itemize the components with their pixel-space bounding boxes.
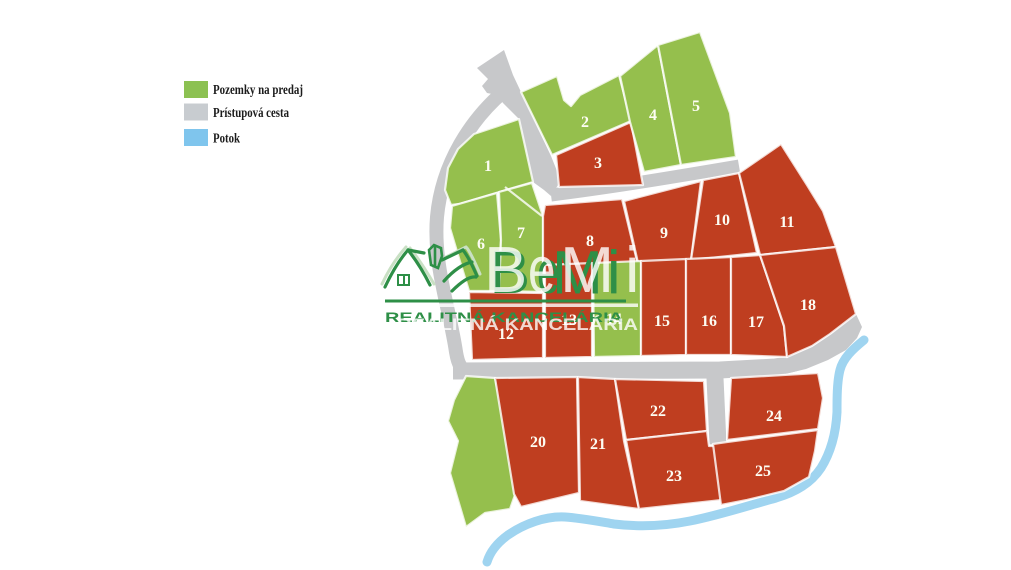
svg-text:5: 5 <box>692 98 700 115</box>
svg-text:21: 21 <box>590 436 606 453</box>
svg-text:Prístupová cesta: Prístupová cesta <box>213 105 289 120</box>
svg-text:M: M <box>560 233 614 306</box>
svg-text:REALITNÁ KANCELÁRIA: REALITNÁ KANCELÁRIA <box>397 315 638 334</box>
svg-text:4: 4 <box>649 107 657 124</box>
svg-text:23: 23 <box>666 468 682 485</box>
svg-text:25: 25 <box>755 463 771 480</box>
svg-text:1: 1 <box>484 158 492 175</box>
svg-text:e: e <box>528 235 555 307</box>
svg-text:Pozemky na predaj: Pozemky na predaj <box>213 82 303 97</box>
svg-text:Potok: Potok <box>213 131 240 146</box>
svg-text:18: 18 <box>800 297 816 314</box>
svg-text:15: 15 <box>654 313 670 330</box>
svg-text:10: 10 <box>714 212 730 229</box>
svg-text:16: 16 <box>701 313 717 330</box>
svg-text:17: 17 <box>748 314 764 331</box>
svg-text:3: 3 <box>594 155 602 172</box>
svg-text:B: B <box>484 233 527 306</box>
svg-text:20: 20 <box>530 434 546 451</box>
svg-text:22: 22 <box>650 403 666 420</box>
svg-text:9: 9 <box>660 225 668 242</box>
svg-text:2: 2 <box>581 114 589 131</box>
svg-text:24: 24 <box>766 408 782 425</box>
svg-text:11: 11 <box>779 214 794 231</box>
svg-text:i: i <box>625 233 639 306</box>
